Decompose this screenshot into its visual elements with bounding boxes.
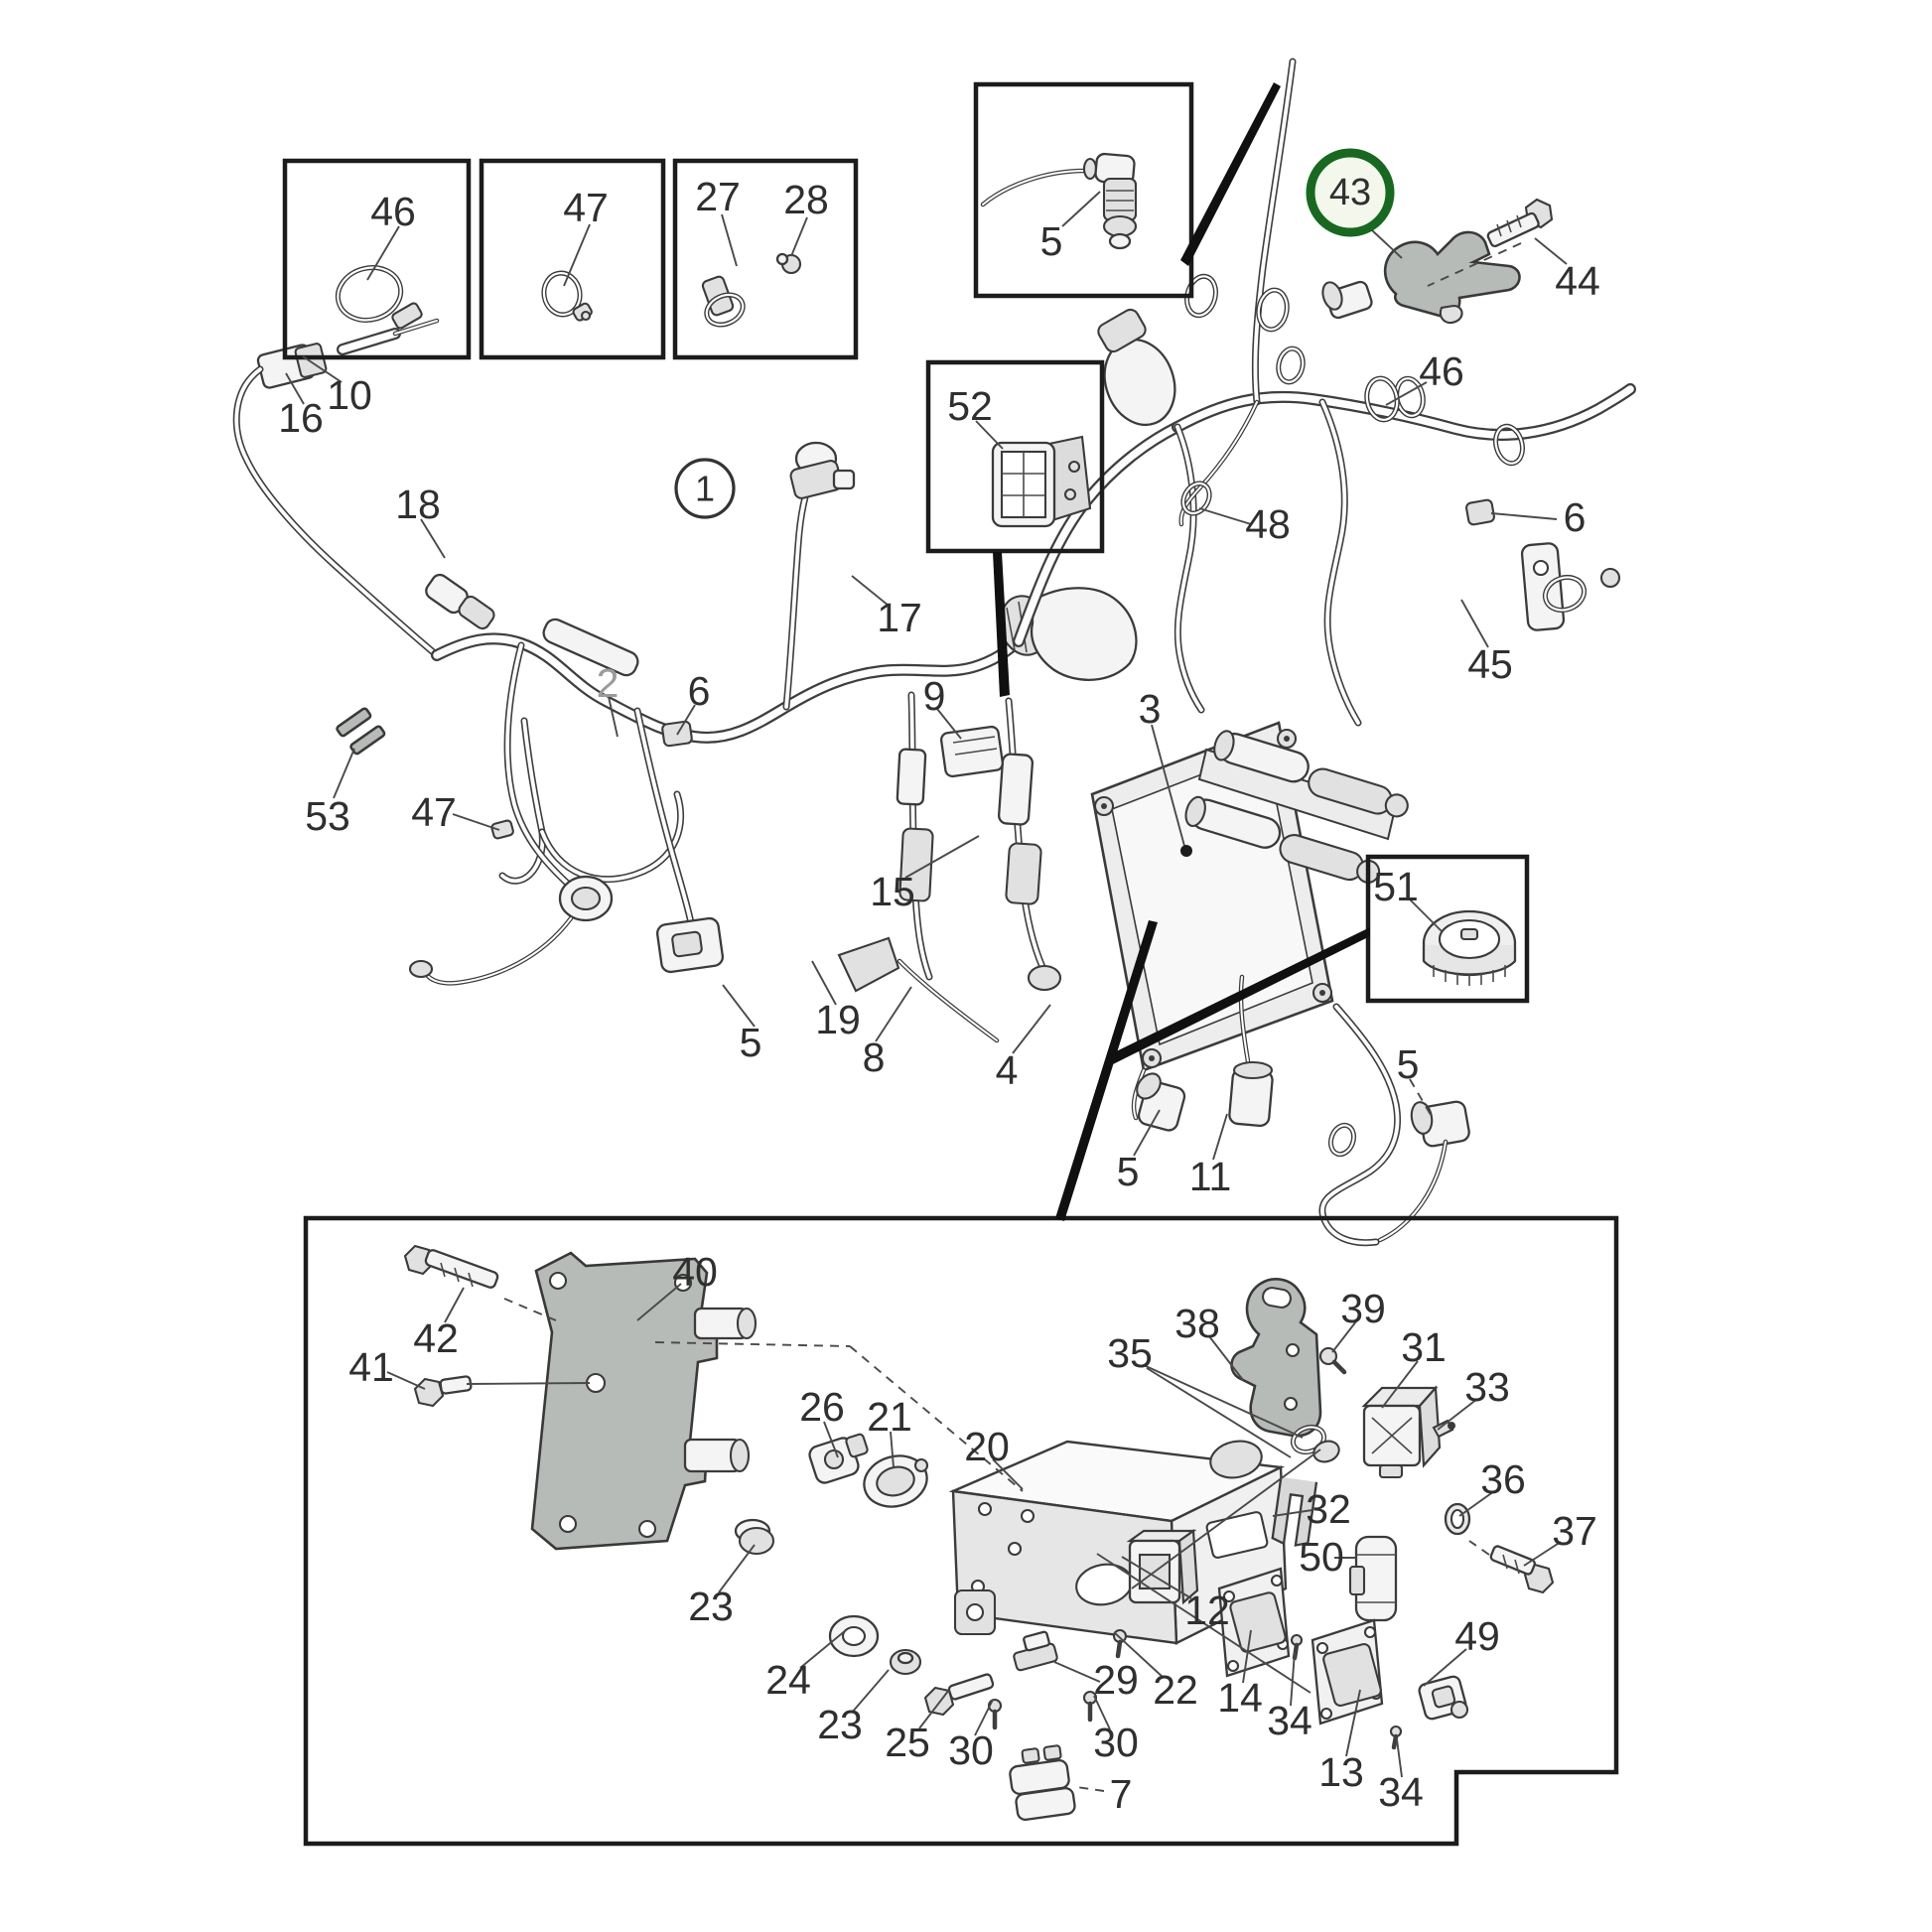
part-label-36-41: 36: [1480, 1456, 1526, 1502]
connector-7-drawing: [1009, 1745, 1075, 1821]
part-label-5-4: 5: [1040, 218, 1063, 264]
bolt-44-drawing: [1486, 200, 1552, 247]
plate-21-drawing: [859, 1449, 933, 1514]
connector-26-drawing: [807, 1434, 868, 1485]
part-label-23-46: 23: [688, 1584, 734, 1629]
part-label-41-32: 41: [348, 1344, 394, 1390]
part-ecu-drawing: [1092, 723, 1414, 1070]
leader-line-1: [564, 224, 590, 286]
part-label-34-56: 34: [1267, 1698, 1312, 1743]
part-label-47-1: 47: [563, 185, 609, 230]
part-label-6-12: 6: [1564, 494, 1587, 540]
part-label-40-30: 40: [672, 1249, 718, 1295]
part-label-39-34: 39: [1340, 1286, 1386, 1331]
part-label-46-6: 46: [1419, 348, 1464, 394]
part-label-6-14: 6: [688, 668, 711, 714]
leader-line-65: [1076, 1787, 1104, 1791]
part-label-34-58: 34: [1378, 1769, 1424, 1815]
part-label-32-43: 32: [1306, 1486, 1351, 1532]
part-label-25-52: 25: [885, 1720, 930, 1765]
part-label-5-27: 5: [1397, 1041, 1420, 1087]
part-label-44-5: 44: [1555, 258, 1600, 304]
washer-24-drawing: [830, 1616, 878, 1656]
part-label-38-33: 38: [1174, 1301, 1220, 1346]
part-label-21-39: 21: [867, 1394, 912, 1440]
wiring-harness-artwork: [236, 62, 1630, 1821]
leader-line-22: [453, 814, 499, 830]
part-label-16-7: 16: [278, 395, 324, 441]
leader-line-20: [1461, 600, 1488, 647]
leader-line-2: [722, 214, 737, 266]
part-label-47-20: 47: [411, 789, 457, 835]
part-label-5-24: 5: [740, 1020, 762, 1065]
part-label-49-47: 49: [1454, 1613, 1500, 1659]
part-label-53-19: 53: [305, 793, 350, 839]
part-label-31-35: 31: [1401, 1324, 1447, 1370]
bracket-38-drawing: [1232, 1279, 1321, 1436]
part-label-30-54: 30: [1093, 1720, 1139, 1765]
relay-13-drawing: [1312, 1620, 1382, 1724]
leader-line-21: [334, 749, 354, 798]
part-label-35-37: 35: [1107, 1330, 1153, 1376]
parts-diagram-page: 143 464727285444616105218486261793455347…: [0, 0, 1932, 1932]
part-label-12-45: 12: [1184, 1587, 1230, 1633]
part-label-50-44: 50: [1299, 1534, 1344, 1580]
part-label-30-53: 30: [948, 1727, 994, 1773]
box-51-content: [1424, 911, 1515, 986]
part-label-37-42: 37: [1552, 1508, 1597, 1554]
grommet-23-drawings: [736, 1520, 920, 1674]
part-label-52-9: 52: [947, 383, 993, 429]
part-label-3-17: 3: [1139, 686, 1162, 732]
callout-circle-text-main-assembly: 1: [695, 469, 715, 509]
leader-line-0: [367, 226, 399, 280]
leader-line-14: [1491, 513, 1557, 519]
sensor-49-drawing: [1418, 1675, 1467, 1721]
part-label-11-29: 11: [1189, 1154, 1232, 1199]
cover-50-drawing: [1350, 1537, 1396, 1620]
part-label-17-15: 17: [877, 595, 922, 640]
part-43-drawing: [1319, 232, 1519, 323]
bracket-40-drawing: [532, 1253, 756, 1549]
part-label-48-11: 48: [1245, 501, 1291, 547]
bolt-42-drawing: [405, 1246, 499, 1289]
part-label-27-2: 27: [695, 174, 741, 219]
part-label-46-0: 46: [370, 189, 416, 234]
leader-dot-0: [1180, 845, 1192, 857]
part-label-5-28: 5: [1117, 1149, 1140, 1194]
part-label-19-23: 19: [815, 997, 861, 1042]
part-label-33-36: 33: [1464, 1364, 1510, 1410]
part-label-13-57: 13: [1318, 1749, 1364, 1795]
part-label-28-3: 28: [783, 177, 829, 222]
leader-line-13: [1199, 508, 1251, 524]
part-label-2-13: 2: [597, 660, 620, 706]
part-label-23-51: 23: [817, 1702, 863, 1747]
part-label-24-48: 24: [765, 1657, 811, 1703]
callout-circle-text-highlight-43: 43: [1329, 172, 1371, 213]
box-27-28-content: [702, 254, 800, 331]
relay-31-drawing: [1364, 1388, 1440, 1477]
part-label-18-10: 18: [395, 482, 441, 527]
part-label-42-31: 42: [413, 1315, 459, 1361]
part-label-29-49: 29: [1093, 1657, 1139, 1703]
part-label-22-50: 22: [1153, 1667, 1198, 1713]
clamp-29-drawing: [1013, 1631, 1057, 1671]
part-label-26-38: 26: [799, 1384, 845, 1430]
leader-line-4: [1062, 192, 1100, 226]
part-label-45-18: 45: [1467, 641, 1513, 687]
part-label-10-8: 10: [327, 372, 372, 418]
leader-line-48: [1469, 1541, 1489, 1555]
part-label-20-40: 20: [964, 1424, 1010, 1469]
part-label-15-21: 15: [870, 869, 915, 914]
part-label-14-55: 14: [1217, 1675, 1263, 1721]
detail-boxes-layer: [285, 84, 1616, 1844]
leader-line-27: [876, 987, 911, 1041]
leader-line-3: [791, 217, 807, 256]
leader-line-7: [1372, 230, 1402, 258]
bolt-41-drawing: [415, 1376, 472, 1406]
parts-diagram-canvas: 143 464727285444616105218486261793455347…: [0, 0, 1932, 1932]
bushing-36-drawing: [1446, 1504, 1469, 1534]
part-label-51-22: 51: [1373, 864, 1419, 909]
leader-line-28: [1013, 1005, 1050, 1053]
leader-dots-layer: [1180, 845, 1192, 857]
box-52-content: [993, 437, 1090, 526]
part-label-4-26: 4: [996, 1047, 1019, 1093]
leader-line-36: [467, 1383, 590, 1384]
box-46-content: [332, 261, 423, 330]
part-label-9-16: 9: [923, 673, 946, 719]
part-label-7-59: 7: [1110, 1771, 1133, 1817]
part-label-8-25: 8: [863, 1035, 886, 1080]
